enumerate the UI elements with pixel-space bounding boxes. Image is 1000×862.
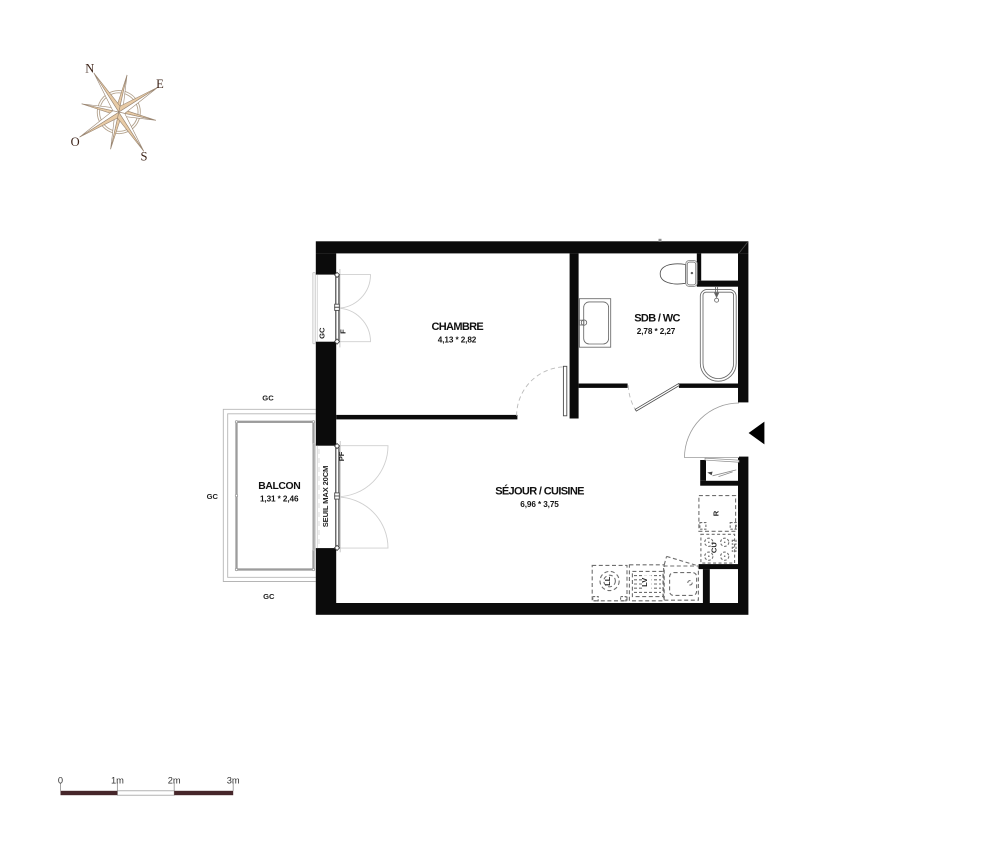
svg-text:SÉJOUR / CUISINE: SÉJOUR / CUISINE: [495, 485, 584, 498]
svg-text:LV: LV: [640, 577, 649, 587]
svg-text:E: E: [156, 77, 164, 91]
svg-text:BALCON: BALCON: [258, 481, 300, 492]
svg-text:F: F: [339, 329, 348, 334]
svg-text:1m: 1m: [111, 776, 124, 786]
svg-text:O: O: [71, 135, 80, 149]
svg-text:2,78 * 2,27: 2,78 * 2,27: [637, 327, 676, 336]
svg-text:CHAMBRE: CHAMBRE: [431, 321, 483, 333]
svg-text:N: N: [85, 62, 94, 76]
svg-text:GC: GC: [262, 394, 274, 403]
svg-text:R: R: [712, 510, 721, 516]
svg-text:SEUIL MAX 20CM: SEUIL MAX 20CM: [321, 466, 330, 527]
svg-text:SDB / WC: SDB / WC: [634, 313, 680, 325]
svg-text:GC: GC: [207, 492, 219, 501]
svg-text:LL: LL: [603, 576, 612, 586]
svg-text:6,96 * 3,75: 6,96 * 3,75: [520, 500, 559, 509]
svg-text:0: 0: [58, 776, 63, 786]
svg-text:S: S: [141, 150, 148, 164]
svg-text:4,13 * 2,82: 4,13 * 2,82: [438, 336, 477, 345]
svg-text:2m: 2m: [168, 776, 181, 786]
svg-text:GC: GC: [317, 327, 326, 339]
svg-text:GC: GC: [263, 592, 275, 601]
svg-text:CU: CU: [710, 542, 719, 553]
svg-text:1,31 * 2,46: 1,31 * 2,46: [260, 495, 299, 504]
svg-text:3m: 3m: [227, 776, 240, 786]
svg-text:PF: PF: [337, 451, 346, 461]
